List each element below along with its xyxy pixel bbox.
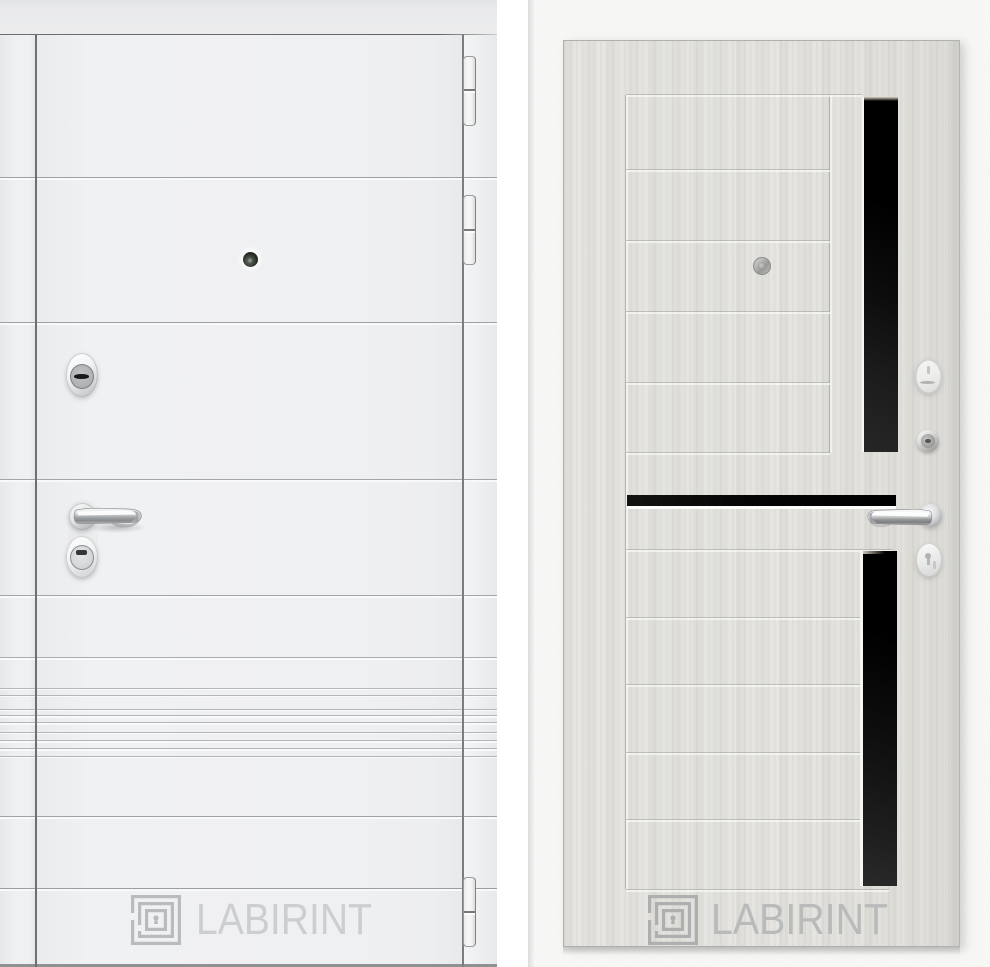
svg-text:LABIRINT: LABIRINT [711,901,888,944]
svg-text:LABIRINT: LABIRINT [196,901,372,944]
